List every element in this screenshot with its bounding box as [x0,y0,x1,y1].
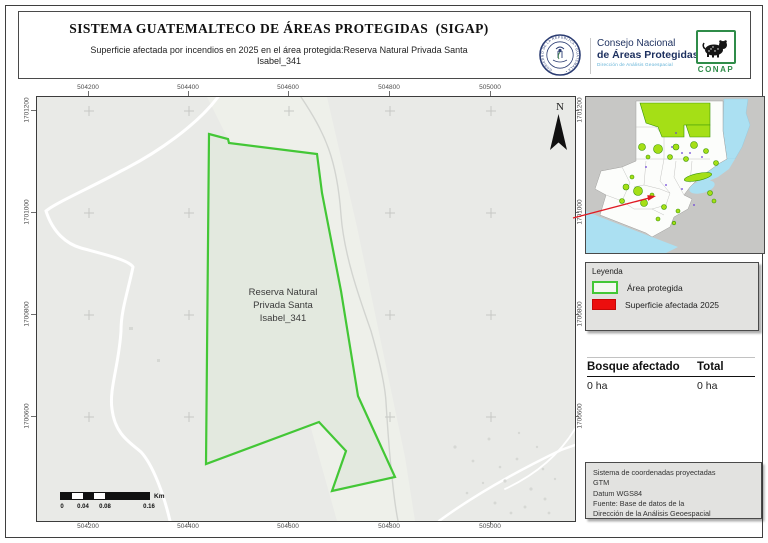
y-tick-label: 1701000 [24,199,31,224]
legend-item-affected-surface: Superficie afectada 2025 [592,299,758,310]
affected-forest-table: Bosque afectado Total 0 ha 0 ha [587,357,755,392]
credits-box: Sistema de coordenadas proyectadas GTM D… [585,462,762,519]
credits-line-1: Sistema de coordenadas proyectadas [593,468,754,478]
protected-area-label: Reserva Natural Privada Santa Isabel_341 [213,286,353,325]
main-map: N Reserva Natural Privada Santa Isabel_3… [36,96,576,522]
scale-label: 0 [60,504,63,510]
legend-title: Leyenda [592,267,758,276]
jaguar-icon [701,36,731,58]
x-tick-label: 504200 [77,84,99,91]
header: SISTEMA GUATEMALTECO DE ÁREAS PROTEGIDAS… [18,11,751,79]
x-tick-label: 504600 [277,84,299,91]
affected-surface-swatch [592,299,616,310]
x-tick-label: 504400 [177,84,199,91]
conap-badge-label: CONAP [693,65,739,74]
inset-map-canvas [586,97,764,253]
government-seal-icon: GOBIERNO DE LA REPÚBLICA • GUATEMALA • [538,33,582,77]
scale-label: 0.04 [77,504,89,510]
y-tick-label: 1701200 [24,97,31,122]
header-divider [590,38,591,74]
credits-line-5: Dirección de la Análisis Geoespacial [593,509,754,519]
page-subtitle: Superficie afectada por incendios en 202… [39,45,519,67]
inset-map-guatemala [585,96,765,254]
page-title: SISTEMA GUATEMALTECO DE ÁREAS PROTEGIDAS… [39,21,519,37]
conap-logo-box [696,30,736,64]
x-tick-label: 505000 [479,84,501,91]
table-value-total: 0 ha [697,377,755,392]
y-tick-label: 1700800 [24,301,31,326]
y-tick-label: 1700600 [24,403,31,428]
table-value-bosque: 0 ha [587,377,697,392]
map-layout-page: SISTEMA GUATEMALTECO DE ÁREAS PROTEGIDAS… [0,0,768,543]
legend-item-protected-area: Área protegida [592,281,758,294]
credits-line-2: GTM [593,478,754,488]
scale-unit: Km [154,493,164,500]
scale-label: 0.16 [143,504,155,510]
scale-bar: Km 0 0.04 0.08 0.16 [61,493,231,515]
credits-line-4: Fuente: Base de datos de la [593,499,754,509]
subtitle-line-2: Isabel_341 [39,56,519,67]
subtitle-line-1: Superficie afectada por incendios en 202… [39,45,519,56]
credits-line-3: Datum WGS84 [593,489,754,499]
table-header-total: Total [697,361,755,377]
table-header-bosque: Bosque afectado [587,361,697,377]
scale-label: 0.08 [99,504,111,510]
conap-logo: CONAP [693,30,739,74]
svg-text:N: N [556,101,564,113]
x-tick-label: 504800 [378,84,400,91]
scale-bar-segments [61,493,149,499]
protected-area-swatch [592,281,618,294]
legend: Leyenda Área protegida Superficie afecta… [585,262,759,331]
